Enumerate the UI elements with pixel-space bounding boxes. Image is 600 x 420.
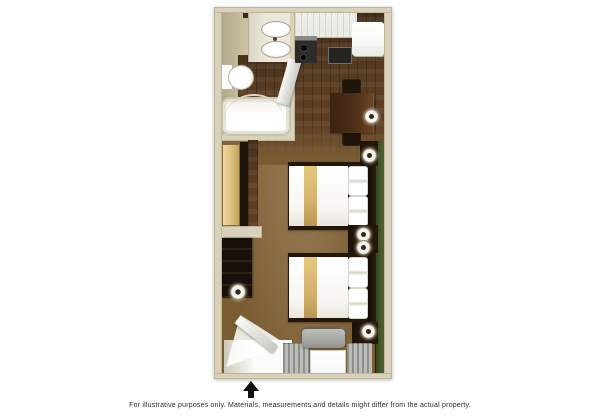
nightstand-lamp <box>356 240 371 255</box>
wall-right <box>384 7 392 379</box>
closet-floor <box>248 140 258 227</box>
wall-left <box>214 7 222 379</box>
floorplan-page: For illustrative purposes only. Material… <box>0 0 600 420</box>
bed <box>288 253 368 322</box>
table-lamp <box>364 109 379 124</box>
burner <box>300 54 307 61</box>
closet-interior <box>240 142 248 228</box>
burner <box>300 44 308 52</box>
pillow <box>348 257 368 288</box>
ptac-heater-unit <box>302 327 345 348</box>
arrow-head <box>243 381 259 391</box>
pillow <box>348 288 368 319</box>
sink <box>261 21 291 38</box>
toilet <box>228 65 254 90</box>
entrance-arrow-icon <box>243 381 259 399</box>
bathroom <box>214 7 295 141</box>
bed-foot-linen <box>289 257 304 318</box>
headboard <box>368 249 376 333</box>
bed-foot-linen <box>289 166 304 226</box>
kitchen-counter <box>295 13 357 38</box>
nightstand-lamp <box>361 324 376 339</box>
closet-door <box>222 144 240 226</box>
refrigerator <box>352 22 384 56</box>
disclaimer-text: For illustrative purposes only. Material… <box>0 401 600 410</box>
wall-bottom <box>214 373 392 379</box>
bed-duvet <box>317 257 348 318</box>
kitchen-sink-appliance <box>328 47 352 64</box>
bed-runner-stripe <box>304 257 317 318</box>
stove <box>295 36 317 63</box>
bed-runner-stripe <box>304 166 317 226</box>
pillow <box>348 166 368 196</box>
floorplan <box>214 7 392 379</box>
sink <box>261 41 291 58</box>
wall-top <box>214 7 392 13</box>
bed-duvet <box>317 166 348 226</box>
pillow <box>348 196 368 226</box>
bed <box>288 162 368 230</box>
faucet <box>273 37 277 41</box>
nightstand-lamp <box>362 148 377 163</box>
drape-right <box>347 343 372 373</box>
arrow-stem <box>248 391 254 398</box>
dresser-lamp <box>230 284 246 300</box>
